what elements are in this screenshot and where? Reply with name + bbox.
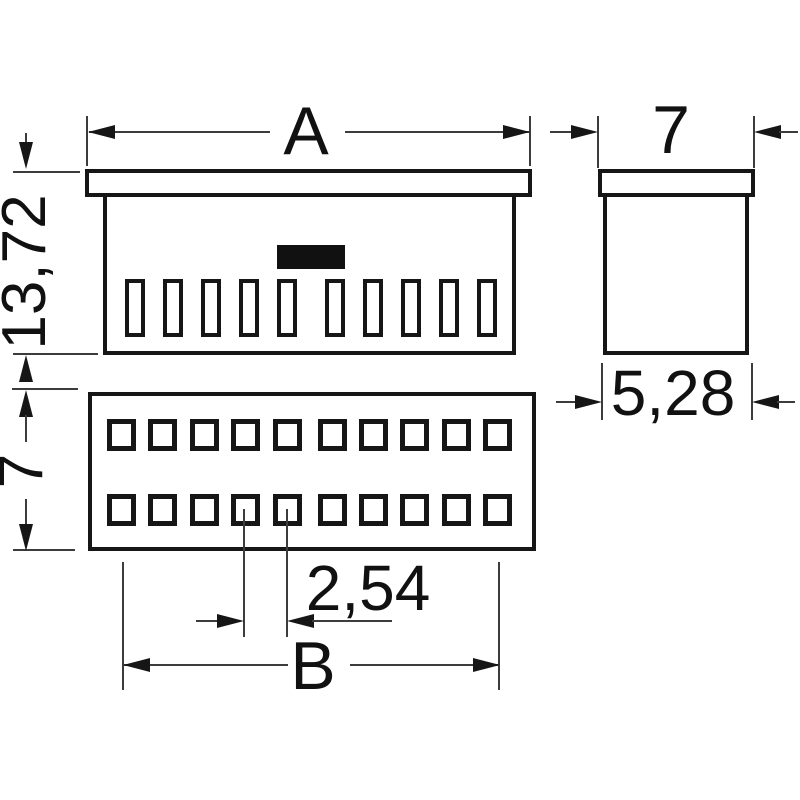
dim-label-bottom-height: 7: [0, 454, 53, 488]
polarization-mark: [277, 245, 345, 269]
dim-bottom-height-line-top: [25, 415, 27, 442]
contact-slot: [163, 279, 183, 337]
contact-hole: [442, 494, 471, 526]
contact-slot: [477, 279, 497, 337]
contact-hole: [107, 494, 136, 526]
contact-slot: [239, 279, 259, 337]
contact-hole: [318, 494, 347, 526]
dim-bottom-height-arrow-bottom: [19, 524, 33, 551]
dim-side-width-tail-left: [550, 131, 573, 133]
dim-label-pin-span: B: [290, 632, 335, 700]
contact-hole: [148, 419, 177, 451]
dim-a-arrow-right: [503, 125, 530, 139]
contact-hole: [400, 494, 429, 526]
dim-side-body-extension-right: [751, 363, 753, 420]
dim-side-width-extension-left: [597, 116, 599, 168]
dim-side-width-tail-right: [779, 131, 798, 133]
contact-hole: [483, 494, 512, 526]
dim-b-arrow-right: [473, 658, 500, 672]
dim-front-height-arrow-top: [19, 142, 33, 169]
dim-side-body-arrow-left: [575, 395, 602, 409]
contact-slot: [125, 279, 145, 337]
contact-slot: [325, 279, 345, 337]
dim-label-side-body-width: 5,28: [611, 361, 736, 425]
contact-hole: [442, 419, 471, 451]
contact-hole: [190, 419, 219, 451]
dim-front-height-arrow-bottom: [19, 355, 33, 382]
contact-hole: [318, 419, 347, 451]
dim-b-arrow-left: [123, 658, 150, 672]
contact-hole: [231, 419, 260, 451]
contact-slot: [363, 279, 383, 337]
dim-front-height-tick-top: [13, 171, 80, 173]
dim-bottom-height-line-bottom: [25, 499, 27, 526]
side-view-body: [603, 193, 749, 355]
dim-a-extension-right: [529, 116, 531, 166]
contact-hole: [273, 419, 302, 451]
dim-side-width-arrow-right: [754, 125, 781, 139]
contact-hole: [400, 419, 429, 451]
contact-hole: [359, 494, 388, 526]
contact-slot: [401, 279, 421, 337]
dim-label-pitch: 2,54: [306, 556, 431, 620]
dim-a-arrow-left: [88, 125, 115, 139]
dim-a-line-right: [345, 131, 529, 133]
contact-slot: [439, 279, 459, 337]
dim-label-front-height: 13,72: [0, 194, 56, 349]
dim-bottom-height-arrow-top: [19, 390, 33, 417]
dim-label-overall-width: A: [283, 97, 328, 165]
dim-a-extension-left: [86, 116, 88, 166]
contact-hole: [190, 494, 219, 526]
contact-hole: [231, 494, 260, 526]
dim-pitch-arrow-left: [217, 614, 244, 628]
dim-side-body-tail-right: [777, 401, 795, 403]
contact-hole: [148, 494, 177, 526]
dim-a-line-left: [89, 131, 270, 133]
contact-slot: [201, 279, 221, 337]
dim-side-body-arrow-right: [752, 395, 779, 409]
contact-slot: [277, 279, 297, 337]
dim-side-width-extension-right: [753, 116, 755, 168]
dim-label-side-width: 7: [652, 96, 690, 164]
dim-side-body-tail-left: [556, 401, 576, 403]
contact-hole: [107, 419, 136, 451]
contact-hole: [483, 419, 512, 451]
contact-hole: [359, 419, 388, 451]
technical-drawing: A 7 13,72 7 5,28 2,54 B: [0, 0, 800, 800]
dim-side-width-arrow-left: [571, 125, 598, 139]
dim-side-body-extension-left: [601, 363, 603, 420]
bottom-view-outline: [88, 392, 536, 551]
